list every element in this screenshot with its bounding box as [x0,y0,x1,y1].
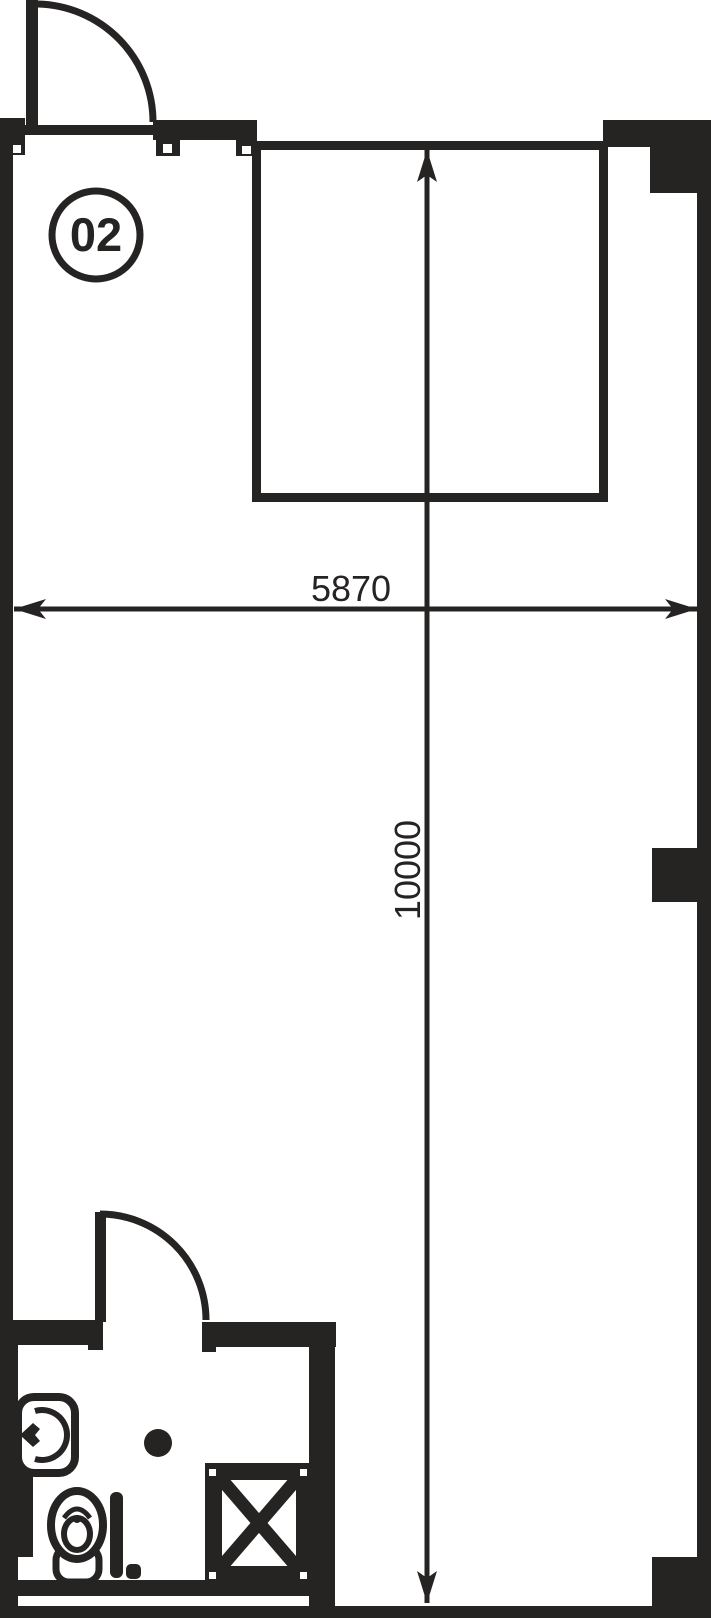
entry-door-leaf [26,0,38,125]
top-wall [0,118,605,156]
entry-door-jamb [0,118,25,155]
bottom-wall [0,1606,711,1618]
grab-bar-icon [110,1492,141,1579]
window-notch-1 [163,144,172,153]
unit-number-badge: 02 [52,191,140,279]
wash-basin-icon [18,1397,75,1473]
floor-plan-drawing: 5870 10000 02 [0,0,711,1618]
shaft-corner-mark-tr [300,1469,307,1476]
right-wall-pier [652,848,697,902]
toilet-icon [51,1491,103,1582]
floor-plan: 5870 10000 02 [0,0,711,1618]
entry-door [26,0,153,125]
width-dimension: 5870 [14,568,697,619]
grab-bar [110,1492,123,1578]
toilet-seat-gap [70,1531,84,1537]
window-notch-right [609,147,618,156]
shaft-corner-mark-tl [209,1469,216,1476]
bathroom-door-swing-arc [100,1214,206,1320]
bathroom-wall-tab-right [202,1322,216,1352]
entry-threshold-line [25,125,153,135]
bathroom-door [95,1212,206,1322]
top-wall-segment [153,120,257,140]
bathroom-wall-tab-left [88,1320,103,1350]
right-wall [697,147,711,1606]
bathroom-door-leaf [95,1212,106,1322]
bathroom [0,1212,336,1618]
entry-door-swing-arc [38,4,153,122]
shaft-corner-mark-bl [209,1572,216,1579]
height-dimension: 10000 [387,150,437,1603]
window-notch-2 [242,146,251,154]
window-notch-jamb [13,145,21,153]
toilet-flush-dot [73,1515,81,1523]
bottom-right-pier [652,1557,711,1607]
shaft-corner-mark-br [300,1572,307,1579]
height-dimension-label: 10000 [387,820,428,920]
service-shaft-icon [205,1463,313,1583]
floor-drain-icon [144,1429,172,1457]
width-dimension-label: 5870 [311,568,391,609]
unit-number: 02 [70,208,122,261]
grab-bar-foot [126,1564,141,1579]
mezzanine-outline [257,146,604,498]
top-right-wall-block [603,120,711,193]
